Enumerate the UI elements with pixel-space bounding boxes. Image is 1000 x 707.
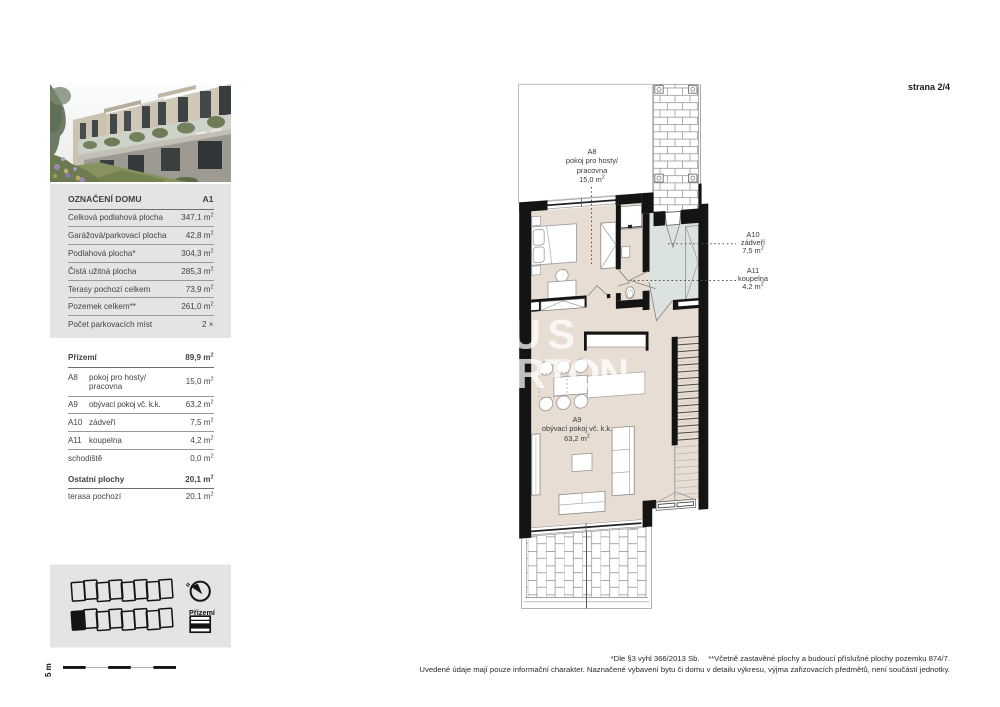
- svg-text:RTON: RTON: [516, 350, 629, 397]
